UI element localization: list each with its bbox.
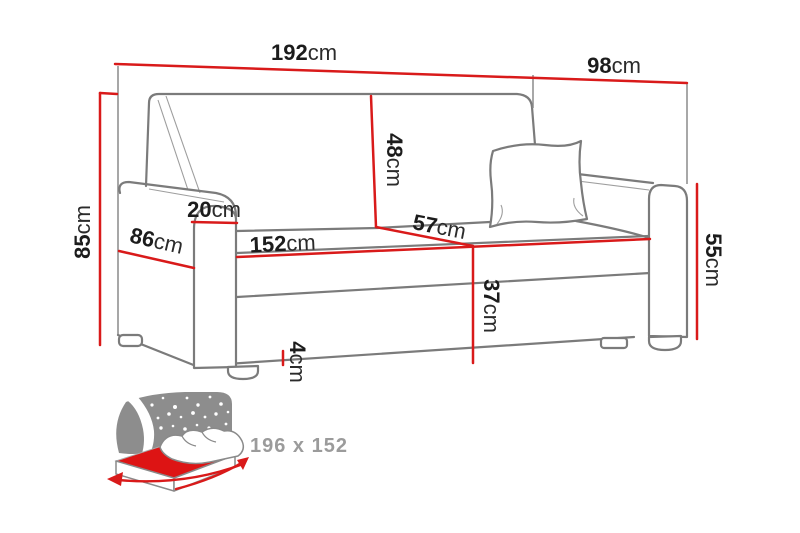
dim-total-depth: 98cm [587, 53, 641, 78]
label-total-width: 192cm [271, 40, 337, 65]
dim-backrest-height: 48cm [371, 96, 407, 227]
label-armrest-width: 20cm [187, 197, 241, 222]
dim-side-depth: 86cm [119, 222, 194, 268]
right-armrest-front [649, 185, 687, 337]
label-seat-width: 152cm [249, 230, 316, 258]
label-side-depth: 86cm [128, 222, 186, 258]
label-leg-height: 4cm [285, 341, 310, 383]
sofa-dimension-diagram: 192cm 98cm 85cm 86cm 20cm 48cm 152cm [0, 0, 800, 533]
leg-front-right [649, 336, 681, 350]
label-backrest-height: 48cm [382, 133, 407, 187]
dim-leg-height: 4cm [283, 341, 310, 383]
pillow [490, 141, 587, 227]
dim-line-backrest-height [371, 96, 376, 227]
base-bottom-edge [196, 337, 634, 366]
dim-line-armrest-width [192, 222, 237, 223]
left-armrest-front [194, 206, 236, 368]
dim-total-height: 85cm [70, 93, 117, 345]
dim-line-height-tick [100, 93, 117, 94]
leg-mid-right [601, 338, 627, 348]
dim-line-side-depth [119, 251, 194, 268]
label-seat-depth: 57cm [411, 209, 469, 244]
leg-front-left [228, 366, 258, 379]
dim-armrest-height: 55cm [697, 184, 726, 339]
label-seat-height: 37cm [479, 279, 504, 333]
backrest-outline [146, 94, 537, 186]
seat-front-face-bottom [237, 273, 650, 297]
label-armrest-height: 55cm [701, 233, 726, 287]
backrest-crease-2 [166, 96, 200, 193]
sleeping-size-label: 196 x 152 [250, 435, 348, 457]
leg-back-left [119, 335, 142, 346]
dim-armrest-width: 20cm [187, 197, 241, 223]
label-total-height: 85cm [70, 205, 95, 259]
sleeping-function-icon: 196 x 152 [107, 392, 348, 491]
label-total-depth: 98cm [587, 53, 641, 78]
dimension-annotations: 192cm 98cm 85cm 86cm 20cm 48cm 152cm [70, 40, 726, 383]
